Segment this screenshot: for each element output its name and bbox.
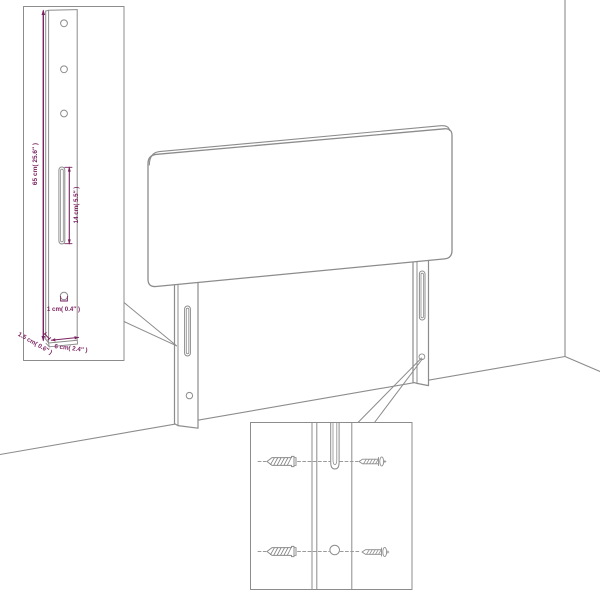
headboard-panel (148, 126, 452, 287)
inset-box (251, 423, 413, 590)
post-detail-inset: 65 cm( 25.6″ ) 14 cm( 5.5″ ) 1 cm( 0.4″ … (17, 7, 124, 361)
slot-length-label: 14 cm( 5.5″ ) (73, 187, 80, 224)
floor-line-right (565, 357, 600, 372)
post-height-label: 65 cm( 25.6″ ) (32, 143, 39, 185)
assembly-diagram: 65 cm( 25.6″ ) 14 cm( 5.5″ ) 1 cm( 0.4″ … (0, 0, 600, 600)
headboard-left-leg (175, 268, 199, 428)
headboard (148, 126, 452, 429)
callout-left (124, 303, 177, 346)
assembly-diagram-page: 65 cm( 25.6″ ) 14 cm( 5.5″ ) 1 cm( 0.4″ … (0, 0, 600, 600)
hardware-detail-inset (251, 423, 413, 590)
hole-size-label: 1 cm( 0.4″ ) (47, 306, 80, 313)
